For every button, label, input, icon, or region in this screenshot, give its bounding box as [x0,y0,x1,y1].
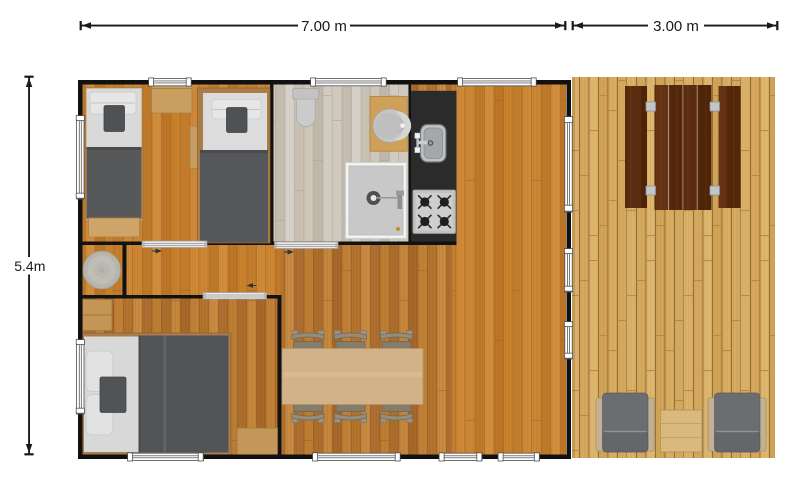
svg-text:7.00 m: 7.00 m [301,18,347,35]
svg-text:3.00 m: 3.00 m [653,18,699,35]
svg-text:5.4m: 5.4m [14,258,45,274]
